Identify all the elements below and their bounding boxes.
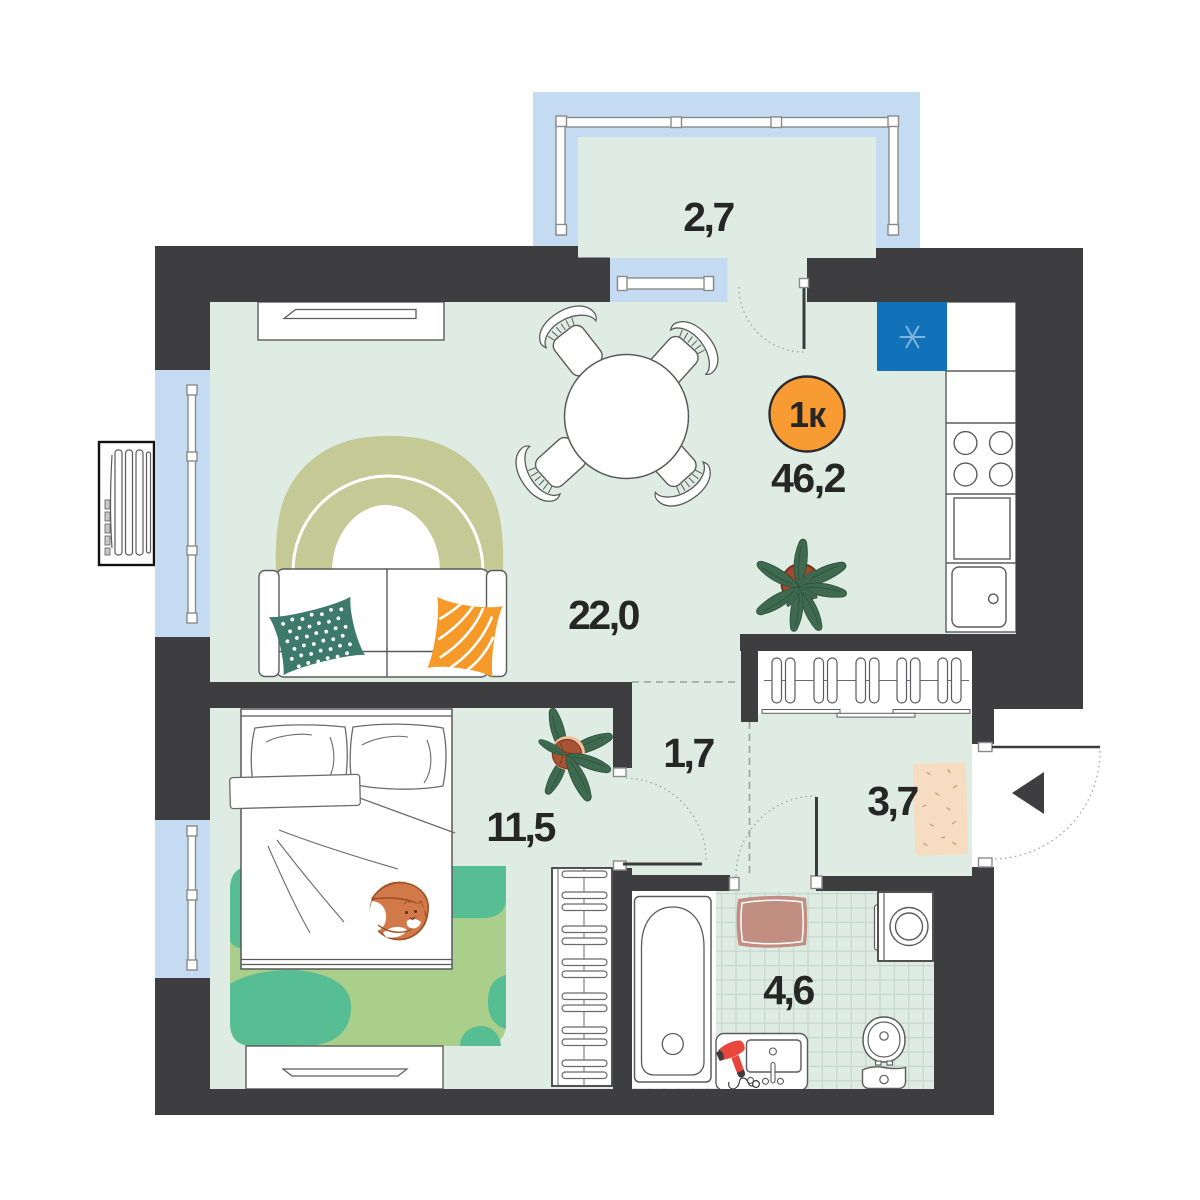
svg-text:1к: 1к [789,394,827,435]
svg-text:2,7: 2,7 [683,194,733,240]
svg-text:3,7: 3,7 [867,778,917,824]
svg-text:46,2: 46,2 [771,455,845,501]
svg-text:11,5: 11,5 [486,804,555,850]
svg-text:22,0: 22,0 [568,592,639,638]
svg-text:1,7: 1,7 [663,730,713,776]
svg-text:4,6: 4,6 [763,967,814,1013]
